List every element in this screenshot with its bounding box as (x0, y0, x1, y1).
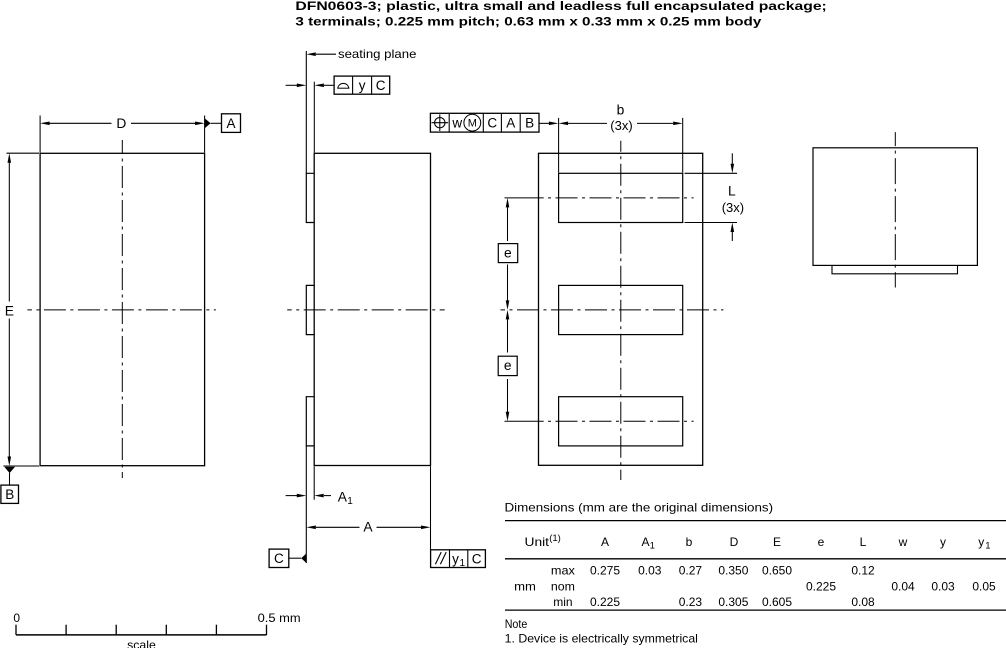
svg-text:1: 1 (650, 541, 655, 552)
svg-text:min: min (553, 595, 572, 609)
svg-text:M: M (468, 118, 477, 130)
svg-text:0.225: 0.225 (590, 595, 620, 609)
svg-text:C: C (472, 551, 482, 566)
svg-text:3 terminals; 0.225 mm pitch; 0: 3 terminals; 0.225 mm pitch; 0.63 mm x 0… (295, 15, 761, 29)
svg-text:L: L (860, 535, 867, 549)
svg-text:0.03: 0.03 (638, 564, 662, 578)
svg-text:1: 1 (460, 558, 466, 569)
svg-text:D: D (116, 116, 126, 131)
svg-text:e: e (504, 245, 512, 260)
svg-text:0.650: 0.650 (762, 564, 792, 578)
svg-text:0.04: 0.04 (891, 579, 915, 593)
svg-text:Unit: Unit (525, 535, 550, 549)
svg-text:0.350: 0.350 (718, 564, 748, 578)
svg-text:w: w (898, 535, 908, 549)
svg-text:nom: nom (551, 579, 575, 593)
svg-text:D: D (730, 535, 739, 549)
svg-text:0.225: 0.225 (806, 579, 836, 593)
svg-text:b: b (617, 103, 625, 118)
svg-text:y: y (978, 535, 984, 549)
svg-text:E: E (5, 303, 14, 318)
svg-text:0.605: 0.605 (762, 595, 792, 609)
svg-text:(1): (1) (549, 533, 561, 544)
svg-text:0: 0 (13, 611, 20, 625)
svg-text:1: 1 (347, 496, 353, 507)
svg-text:0.305: 0.305 (718, 595, 748, 609)
svg-text:y: y (940, 535, 946, 549)
svg-text:0.23: 0.23 (679, 595, 703, 609)
svg-text:C: C (274, 551, 284, 566)
svg-text:mm: mm (514, 579, 536, 593)
svg-text:A: A (601, 535, 609, 549)
svg-text:scale: scale (127, 638, 156, 648)
svg-text:DFN0603-3; plastic, ultra smal: DFN0603-3; plastic, ultra small and lead… (295, 0, 826, 13)
svg-text:0.08: 0.08 (851, 595, 875, 609)
svg-text:A: A (363, 520, 373, 535)
svg-text:0.5 mm: 0.5 mm (258, 611, 301, 625)
svg-text:0.03: 0.03 (931, 579, 955, 593)
svg-text:0.12: 0.12 (851, 564, 875, 578)
svg-text:A: A (226, 116, 235, 131)
svg-text:(3x): (3x) (722, 200, 744, 215)
svg-text:C: C (376, 78, 386, 93)
svg-text:Dimensions (mm are the origina: Dimensions (mm are the original dimensio… (505, 501, 774, 515)
svg-text:Note: Note (505, 617, 528, 631)
svg-text:A: A (506, 116, 515, 131)
svg-text:e: e (818, 535, 825, 549)
svg-text:E: E (773, 535, 781, 549)
svg-text:0.05: 0.05 (972, 579, 996, 593)
svg-text:y: y (359, 78, 366, 93)
svg-text:y: y (452, 551, 459, 566)
svg-text:B: B (5, 487, 14, 502)
svg-text:B: B (525, 116, 534, 131)
svg-text:1. Device is electrically symm: 1. Device is electrically symmetrical (505, 632, 698, 646)
svg-text:(3x): (3x) (610, 118, 632, 133)
svg-text:A: A (338, 490, 348, 505)
svg-text:max: max (551, 564, 575, 578)
svg-text:seating plane: seating plane (338, 47, 417, 61)
svg-text:b: b (686, 535, 693, 549)
svg-text:1: 1 (985, 541, 990, 552)
svg-text:C: C (487, 116, 497, 131)
svg-text:0.275: 0.275 (590, 564, 620, 578)
svg-text:A: A (641, 535, 649, 549)
svg-text:0.27: 0.27 (679, 564, 703, 578)
svg-text:L: L (728, 184, 736, 199)
svg-text:w: w (451, 116, 462, 131)
svg-text:e: e (504, 358, 512, 373)
